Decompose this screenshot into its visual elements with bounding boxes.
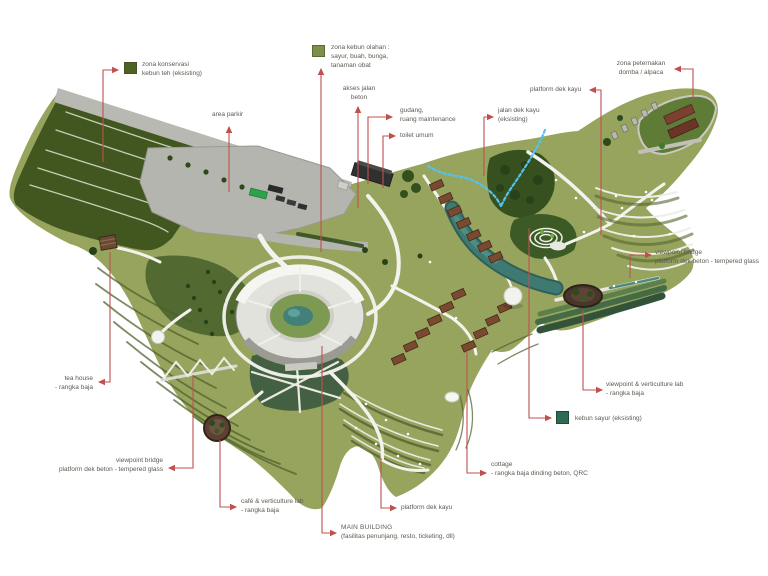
tea-house-hut: [99, 235, 117, 251]
tea-house-tree: [89, 247, 97, 255]
label-akses-jalan: akses jalan beton: [340, 84, 378, 102]
label-main-building: MAIN BUILDING (fasilitas penunjang, rest…: [341, 523, 455, 541]
label-cafe-verticulture: café & verticulture lab - rangka baja: [241, 497, 304, 515]
label-platform-dek-kayu-bawah: platform dek kayu: [401, 503, 452, 512]
label-zona-kebun-olahan: zona kebun olahan : sayur, buah, bunga, …: [331, 43, 390, 70]
legend-swatch-crop-zone: [312, 45, 325, 57]
label-zona-konservasi: zona konservasi kebun teh (eksisting): [142, 60, 202, 78]
viewpoint-lab-right: [564, 285, 602, 307]
label-zona-peternakan: zona peternakan domba / alpaca: [612, 59, 670, 77]
cafe-verticulture-structure: [204, 415, 230, 441]
label-jalan-dek-kayu: jalan dek kayu (eksisting): [498, 106, 540, 124]
site-plan-illustration: [0, 0, 768, 576]
label-platform-dek-kayu-atas: platform dek kayu: [530, 85, 581, 94]
site-plan: zona konservasi kebun teh (eksisting) zo…: [0, 0, 768, 576]
label-cottage: cottage - rangka baja dinding beton, QRC: [491, 460, 588, 478]
label-toilet-umum: toilet umum: [400, 131, 434, 140]
legend-swatch-tea-zone: [124, 62, 137, 74]
label-viewpoint-bridge-kiri: viewpoint bridge platform dek beton - te…: [59, 456, 163, 474]
label-kebun-sayur: kebun sayur (eksisting): [575, 414, 642, 423]
label-area-parkir: area parkir: [212, 110, 243, 119]
label-viewpoint-bridge-kanan: viewpoint bridge platform dek beton - te…: [655, 248, 759, 266]
label-tea-house: tea house - rangka baja: [55, 374, 93, 392]
label-gudang: gudang, ruang maintenance: [400, 106, 456, 124]
legend-swatch-vegetable-zone: [556, 411, 569, 424]
label-viewpoint-lab-kanan: viewpoint & verticulture lab - rangka ba…: [606, 380, 683, 398]
